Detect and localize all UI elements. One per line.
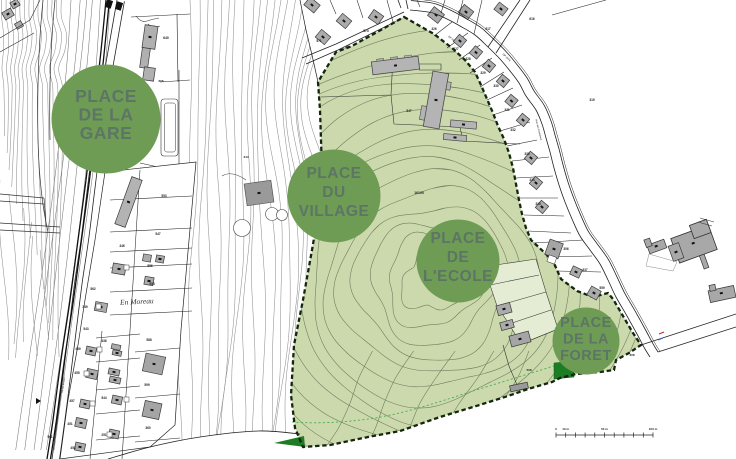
svg-text:DE LA: DE LA bbox=[79, 105, 134, 125]
svg-text:451: 451 bbox=[67, 422, 73, 426]
svg-text:547: 547 bbox=[155, 232, 161, 236]
svg-text:334: 334 bbox=[529, 178, 535, 182]
svg-text:617: 617 bbox=[485, 27, 491, 31]
svg-text:DE: DE bbox=[447, 249, 470, 266]
svg-text:333: 333 bbox=[524, 152, 530, 156]
svg-text:553: 553 bbox=[161, 194, 167, 198]
svg-text:508: 508 bbox=[526, 368, 531, 372]
svg-text:439: 439 bbox=[75, 347, 81, 351]
svg-text:GARE: GARE bbox=[80, 123, 133, 143]
svg-text:543: 543 bbox=[83, 327, 89, 331]
svg-text:VILLAGE: VILLAGE bbox=[299, 203, 370, 220]
svg-text:559: 559 bbox=[599, 286, 605, 290]
svg-text:PLACE: PLACE bbox=[306, 165, 361, 182]
svg-text:En Moreau: En Moreau bbox=[119, 296, 154, 307]
svg-text:335: 335 bbox=[535, 202, 541, 206]
svg-text:588: 588 bbox=[146, 338, 152, 342]
svg-text:640: 640 bbox=[163, 36, 169, 40]
svg-text:329: 329 bbox=[480, 71, 486, 75]
svg-text:346: 346 bbox=[119, 244, 125, 248]
svg-text:DU: DU bbox=[322, 184, 345, 201]
svg-text:544: 544 bbox=[101, 396, 107, 400]
svg-text:330: 330 bbox=[493, 84, 499, 88]
svg-text:556: 556 bbox=[147, 264, 153, 268]
svg-text:PLACE: PLACE bbox=[560, 315, 612, 331]
svg-text:331: 331 bbox=[504, 108, 510, 112]
svg-text:562: 562 bbox=[90, 287, 96, 291]
svg-text:616: 616 bbox=[529, 17, 535, 21]
svg-text:436: 436 bbox=[101, 339, 107, 343]
svg-text:332: 332 bbox=[510, 128, 516, 132]
svg-text:558: 558 bbox=[149, 282, 155, 286]
svg-text:306: 306 bbox=[563, 247, 569, 251]
svg-text:574: 574 bbox=[363, 29, 369, 33]
svg-text:561: 561 bbox=[47, 435, 53, 439]
svg-text:349: 349 bbox=[82, 305, 88, 309]
svg-text:453: 453 bbox=[70, 446, 76, 450]
svg-text:326: 326 bbox=[431, 27, 437, 31]
svg-text:327: 327 bbox=[453, 47, 459, 51]
svg-text:571: 571 bbox=[316, 39, 322, 43]
svg-text:251: 251 bbox=[101, 433, 107, 437]
svg-text:328: 328 bbox=[465, 57, 471, 61]
svg-text:FORET: FORET bbox=[560, 348, 612, 364]
svg-text:L'ECOLE: L'ECOLE bbox=[423, 268, 493, 285]
svg-text:PLACE: PLACE bbox=[75, 86, 137, 106]
svg-text:DE LA: DE LA bbox=[563, 332, 609, 348]
svg-text:457: 457 bbox=[69, 399, 75, 403]
svg-text:606: 606 bbox=[158, 79, 163, 83]
svg-text:10 m: 10 m bbox=[562, 427, 569, 431]
svg-text:50 m: 50 m bbox=[601, 427, 608, 431]
svg-text:360: 360 bbox=[145, 426, 151, 430]
svg-text:455: 455 bbox=[74, 371, 80, 375]
svg-text:319: 319 bbox=[589, 98, 595, 102]
svg-text:599: 599 bbox=[144, 383, 150, 387]
svg-text:100 m: 100 m bbox=[649, 427, 658, 431]
svg-text:308: 308 bbox=[629, 353, 634, 357]
svg-text:337: 337 bbox=[582, 268, 588, 272]
svg-text:PLACE: PLACE bbox=[430, 230, 485, 247]
svg-text:16105: 16105 bbox=[414, 191, 424, 195]
svg-text:344: 344 bbox=[243, 155, 248, 159]
svg-text:547: 547 bbox=[406, 109, 412, 113]
